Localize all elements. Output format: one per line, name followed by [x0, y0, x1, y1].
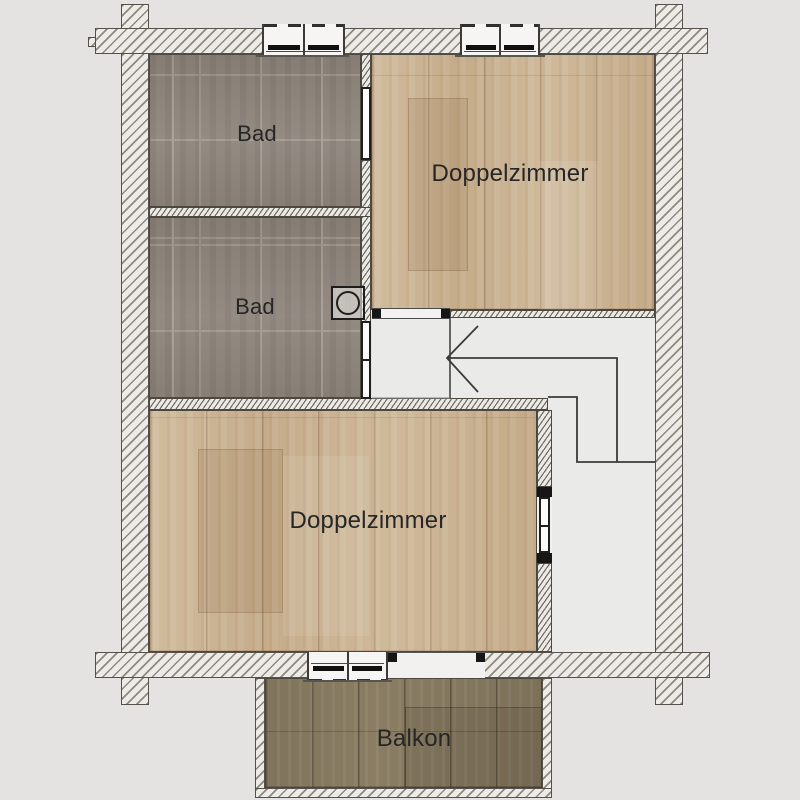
window-top-bad-sill: [256, 55, 349, 57]
wall-top-end-notch: [88, 37, 96, 47]
wall-bad1-doppelzimmer1-upper: [361, 54, 371, 88]
wall-bad2-doppelzimmer2: [149, 398, 548, 410]
wall-exterior-left: [121, 4, 149, 705]
floor-plan-canvas: Bad Bad Doppelzimmer Doppelzimmer Balkon: [0, 0, 800, 800]
room-doppelzimmer-2-label: Doppelzimmer: [289, 507, 446, 535]
wall-bad1-doppelzimmer1-lower: [361, 160, 371, 208]
washing-machine-drum-icon: [336, 291, 360, 315]
balcony-label: Balkon: [377, 725, 452, 753]
door-doppelzimmer2-jamb-top: [537, 487, 552, 497]
wall-exterior-top: [95, 28, 708, 54]
wall-doppelzimmer1-hall: [450, 310, 655, 318]
hall-vestibule-floor: [372, 318, 450, 398]
balcony-wall-bottom: [255, 788, 552, 798]
balcony-wall-left: [255, 678, 265, 798]
room-doppelzimmer-1-label: Doppelzimmer: [431, 160, 588, 188]
hall-corridor-floor: [548, 398, 655, 652]
wall-exterior-right: [655, 4, 683, 705]
washing-machine-icon: [331, 286, 365, 320]
door-bad2-hall-icon: [361, 321, 371, 399]
door-doppelzimmer2-icon: [539, 497, 550, 553]
window-top-bad-icon: [262, 24, 345, 56]
window-top-doppelzimmer-icon: [460, 24, 540, 56]
window-top-doppelzimmer-sill: [455, 55, 545, 57]
door-doppelzimmer2-jamb-bottom: [537, 553, 552, 563]
window-bottom-doppelzimmer-sill: [303, 680, 392, 682]
wall-between-bad1-bad2: [149, 207, 371, 217]
wall-doppelzimmer2-hall-lower: [537, 563, 552, 652]
room-bad-1-label: Bad: [237, 121, 277, 147]
room-bad-2-label: Bad: [235, 294, 275, 320]
window-bottom-doppelzimmer-icon: [307, 652, 388, 682]
wall-doppelzimmer2-hall-upper: [537, 410, 552, 487]
balcony-wall-right: [542, 678, 552, 798]
door-bad1-ensuite-icon: [361, 87, 371, 160]
door-doppelzimmer1-open-icon: [372, 308, 450, 319]
door-balcony-open-icon: [388, 652, 485, 678]
hall-stairs-floor: [450, 318, 655, 398]
